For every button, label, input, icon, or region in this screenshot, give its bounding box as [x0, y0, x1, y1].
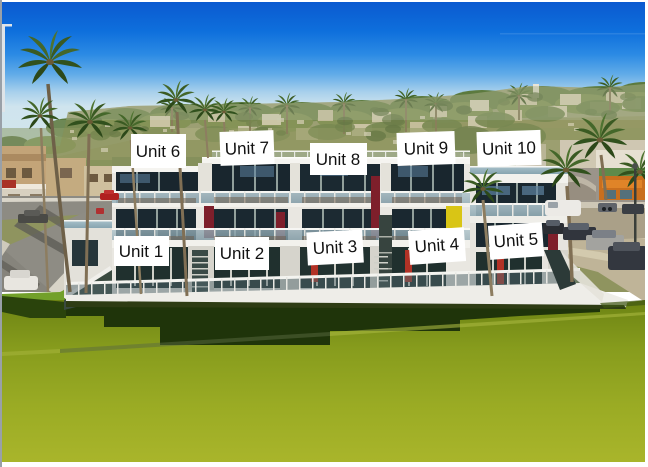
svg-text:Unit 1: Unit 1: [119, 242, 163, 261]
svg-text:Unit 7: Unit 7: [224, 138, 269, 159]
svg-text:Unit 9: Unit 9: [403, 138, 448, 159]
svg-text:Unit 3: Unit 3: [312, 237, 357, 258]
svg-text:Unit 6: Unit 6: [136, 142, 180, 161]
svg-text:Unit 2: Unit 2: [220, 244, 264, 263]
svg-text:Unit 8: Unit 8: [316, 150, 360, 169]
svg-text:Unit 4: Unit 4: [414, 234, 460, 256]
svg-text:Unit 5: Unit 5: [493, 229, 539, 251]
svg-text:Unit 10: Unit 10: [482, 138, 537, 159]
